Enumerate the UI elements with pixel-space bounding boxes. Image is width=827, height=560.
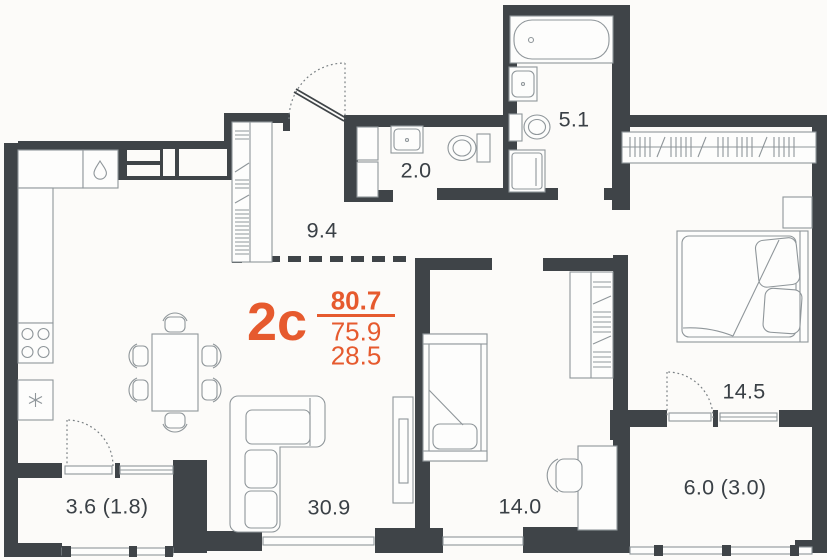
duct-inset	[127, 165, 160, 176]
bathroom-toilet	[509, 114, 550, 141]
duct-inset	[127, 150, 160, 161]
chair	[202, 344, 221, 368]
child-room-furniture	[423, 272, 617, 530]
child-wardrobe	[570, 272, 613, 378]
pillow	[433, 424, 477, 449]
desk-chair	[547, 459, 582, 492]
chair	[129, 344, 148, 368]
floor-plan: 9.4 2.0 5.1 14.5 30.9 14.0 6.0 (3.0) 3.6…	[0, 0, 827, 560]
child-room-window	[443, 537, 523, 545]
balcony-right-door-threshold	[669, 413, 711, 421]
living-room-window	[263, 537, 374, 545]
wc-sink	[391, 126, 423, 153]
duct-inset	[163, 149, 175, 176]
desk	[578, 446, 617, 530]
area-living: 28.5	[331, 341, 382, 372]
kitchen-counter-side	[18, 188, 53, 323]
area-label-living-kitchen: 30.9	[307, 496, 350, 521]
area-label-hallway: 9.4	[307, 219, 338, 244]
dining-table	[152, 334, 198, 411]
pillow	[755, 237, 801, 288]
tv	[399, 419, 408, 483]
duct-shaft	[357, 127, 378, 197]
fridge	[18, 380, 53, 420]
double-bed	[677, 231, 808, 342]
balcony-left-glazing	[62, 548, 173, 555]
balcony-left-door-threshold	[65, 466, 112, 474]
hall-wardrobe	[232, 122, 272, 262]
entry-door	[289, 63, 346, 121]
pillow	[763, 288, 803, 334]
dining-set	[129, 313, 221, 432]
bathroom-sink	[509, 67, 537, 101]
area-label-bathroom: 5.1	[559, 108, 590, 133]
washing-machine	[509, 150, 545, 192]
kitchen-fixtures	[18, 150, 118, 420]
chair	[129, 378, 148, 402]
unit-type-label: 2с	[247, 291, 307, 353]
bathroom-fixtures	[509, 16, 613, 192]
area-label-balcony-left: 3.6 (1.8)	[66, 495, 149, 520]
single-bed	[423, 334, 487, 461]
duct-inset	[179, 149, 227, 176]
chair	[163, 313, 187, 332]
stove	[18, 323, 53, 363]
tv-stand	[393, 397, 413, 503]
bathtub	[510, 16, 613, 63]
bedroom-closet-rail	[622, 132, 816, 163]
area-total: 80.7	[331, 286, 382, 317]
nightstand	[783, 197, 812, 228]
bedroom-furniture	[622, 132, 816, 342]
area-label-bedroom: 14.5	[722, 380, 765, 405]
chair	[163, 413, 187, 432]
chair	[202, 378, 221, 402]
kitchen-sink-cabinet	[83, 150, 118, 188]
area-label-child-room: 14.0	[498, 495, 541, 520]
wc-toilet	[448, 134, 490, 162]
area-label-wc: 2.0	[401, 159, 432, 184]
balcony-left-door	[67, 420, 113, 466]
area-label-balcony-right: 6.0 (3.0)	[684, 476, 767, 501]
kitchen-counter	[18, 150, 83, 188]
